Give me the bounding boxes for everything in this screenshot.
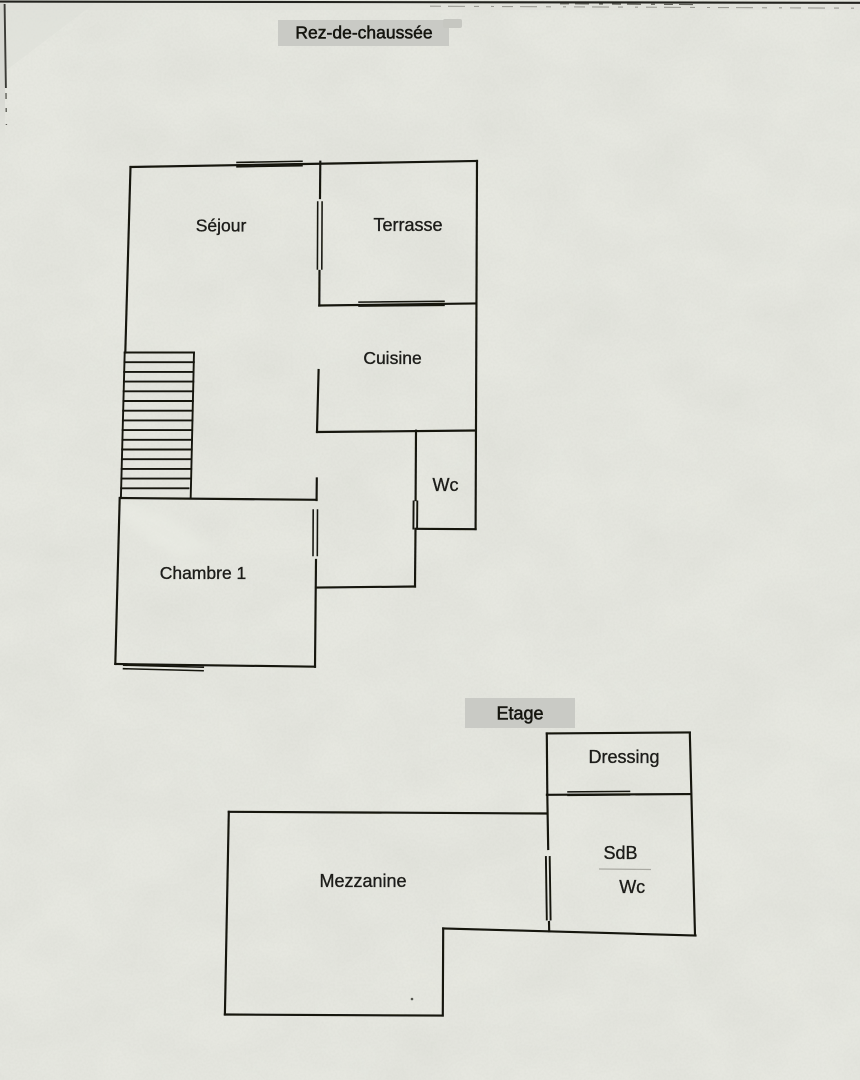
svg-text:Mezzanine: Mezzanine [319,871,406,891]
svg-text:Chambre 1: Chambre 1 [160,563,247,583]
svg-text:Terrasse: Terrasse [373,215,442,235]
svg-text:Cuisine: Cuisine [363,348,421,368]
svg-text:Wc: Wc [433,475,459,495]
svg-text:Etage: Etage [496,704,543,724]
svg-text:Rez-de-chaussée: Rez-de-chaussée [295,23,432,43]
svg-text:SdB: SdB [603,843,637,863]
svg-text:Dressing: Dressing [588,747,659,767]
svg-text:Séjour: Séjour [196,216,247,236]
svg-text:Wc: Wc [619,877,645,897]
